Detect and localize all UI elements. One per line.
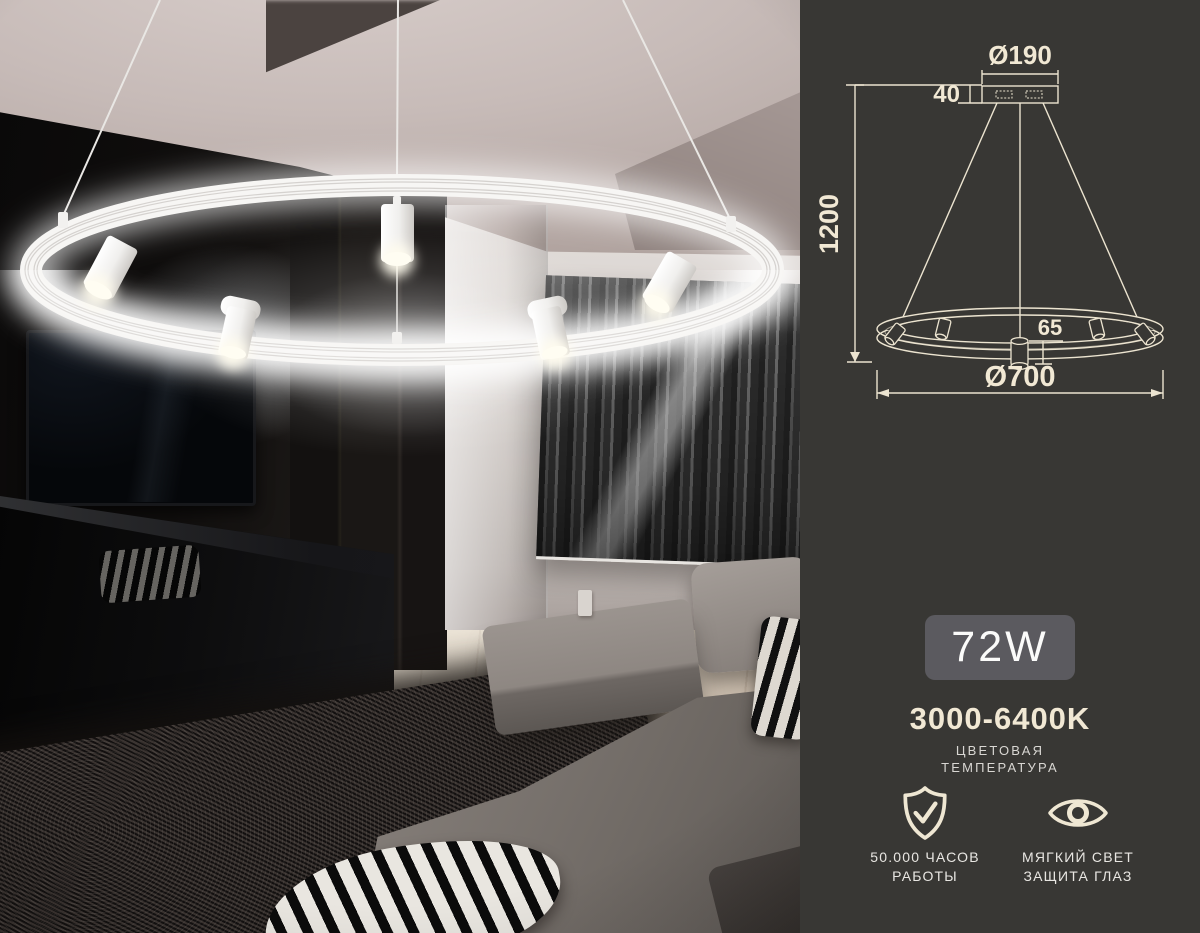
color-temperature-caption: ЦВЕТОВАЯ ТЕМПЕРАТУРА — [800, 742, 1200, 776]
ring-pendant-lamp — [0, 0, 800, 560]
feature-soft-light-line-2: ЗАЩИТА ГЛАЗ — [988, 867, 1168, 886]
caption-line-1: ЦВЕТОВАЯ — [800, 742, 1200, 759]
feature-soft-light: МЯГКИЙ СВЕТ ЗАЩИТА ГЛАЗ — [988, 786, 1168, 886]
spec-panel: Ø190 40 1200 65 Ø700 72W 3000-6400K ЦВЕТ… — [800, 0, 1200, 933]
eye-icon — [1047, 786, 1109, 840]
color-temperature-value: 3000-6400K — [800, 701, 1200, 737]
shield-check-icon — [902, 786, 948, 840]
light-switch — [578, 590, 592, 616]
dimension-diagram: Ø190 40 1200 65 Ø700 — [800, 0, 1200, 470]
feature-soft-light-line-1: МЯГКИЙ СВЕТ — [988, 848, 1168, 867]
suspension-height-label: 1200 — [814, 194, 844, 254]
canopy-height-label: 40 — [933, 81, 960, 108]
canopy-diameter-label: Ø190 — [988, 40, 1052, 70]
caption-line-2: ТЕМПЕРАТУРА — [800, 759, 1200, 776]
ring-diameter-label: Ø700 — [985, 361, 1056, 393]
spot-height-label: 65 — [1038, 315, 1062, 340]
wattage-badge: 72W — [925, 615, 1075, 680]
product-card: Ø190 40 1200 65 Ø700 72W 3000-6400K ЦВЕТ… — [0, 0, 1200, 933]
spotlight-center — [380, 204, 414, 277]
suspension-cables — [63, 0, 731, 336]
living-room-photo — [0, 0, 800, 933]
